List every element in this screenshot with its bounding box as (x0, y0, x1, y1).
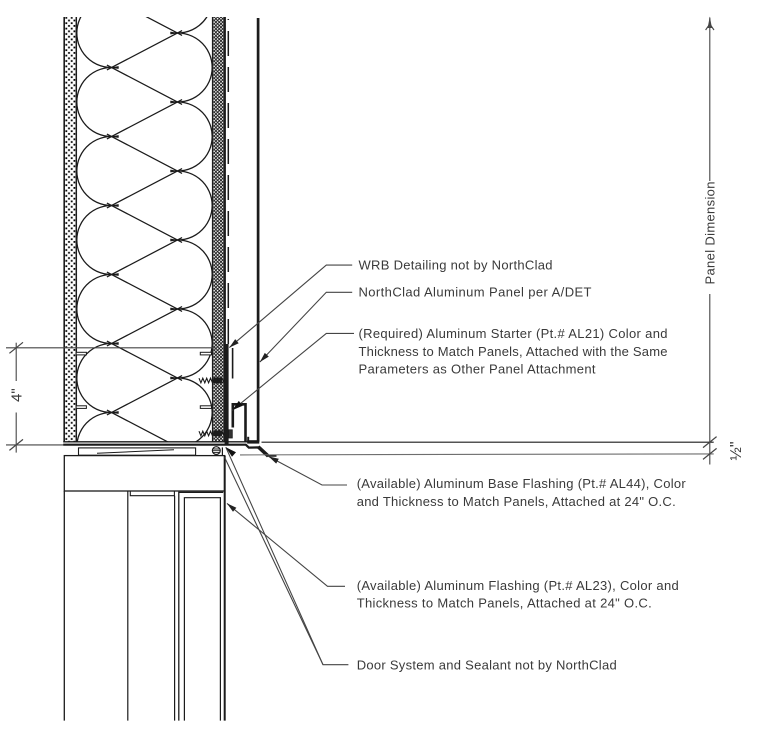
svg-text:(Required) Aluminum Starter (P: (Required) Aluminum Starter (Pt.# AL21) … (359, 326, 668, 341)
svg-text:Parameters as Other Panel Atta: Parameters as Other Panel Attachment (359, 361, 596, 376)
svg-text:WRB Detailing not by NorthClad: WRB Detailing not by NorthClad (359, 257, 553, 272)
svg-text:NorthClad Aluminum Panel per A: NorthClad Aluminum Panel per A/DET (359, 284, 592, 299)
svg-text:Thickness to Match Panels, Att: Thickness to Match Panels, Attached at 2… (357, 596, 652, 611)
svg-text:(Available) Aluminum Base Flas: (Available) Aluminum Base Flashing (Pt.#… (357, 476, 687, 491)
svg-text:½": ½" (728, 441, 745, 460)
svg-text:4": 4" (9, 388, 26, 402)
svg-text:(Available) Aluminum Flashing: (Available) Aluminum Flashing (Pt.# AL23… (357, 578, 679, 593)
svg-text:and Thickness to Match Panels,: and Thickness to Match Panels, Attached … (357, 494, 676, 509)
svg-text:Thickness to Match Panels, Att: Thickness to Match Panels, Attached with… (359, 344, 668, 359)
svg-text:Door System and Sealant not by: Door System and Sealant not by NorthClad (357, 657, 617, 672)
svg-text:Panel Dimension: Panel Dimension (703, 182, 718, 285)
